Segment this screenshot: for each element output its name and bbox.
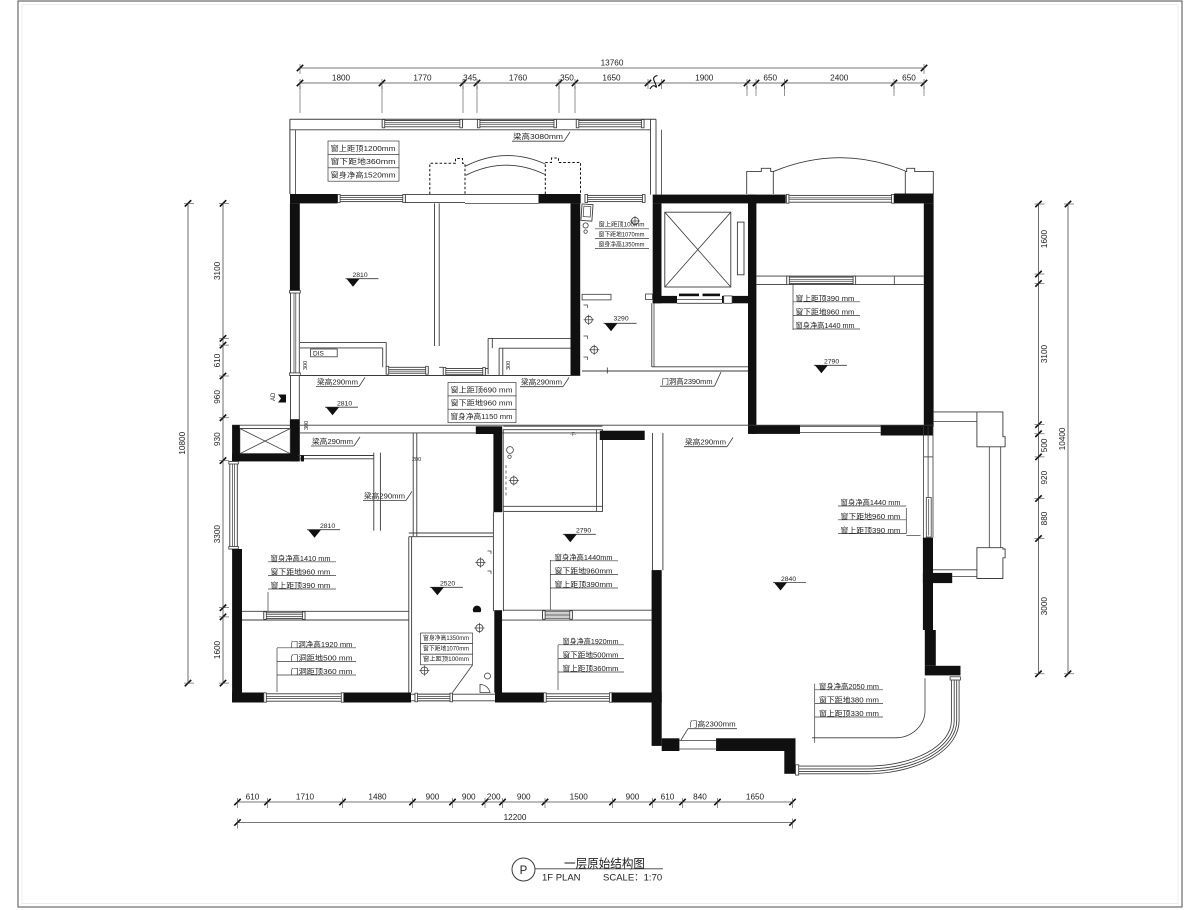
svg-text:1650: 1650 xyxy=(602,74,621,83)
svg-text:SCALE：1:70: SCALE：1:70 xyxy=(603,873,662,884)
svg-text:窗身净高1350mm: 窗身净高1350mm xyxy=(599,240,645,248)
svg-text:DIS: DIS xyxy=(313,351,325,358)
svg-text:1710: 1710 xyxy=(296,793,315,802)
svg-text:960: 960 xyxy=(213,390,222,404)
svg-text:2400: 2400 xyxy=(830,74,849,83)
svg-text:梁高290mm: 梁高290mm xyxy=(521,378,562,387)
svg-text:1600: 1600 xyxy=(1040,229,1049,248)
svg-text:610: 610 xyxy=(246,793,260,802)
svg-text:880: 880 xyxy=(1040,511,1049,525)
svg-text:650: 650 xyxy=(902,74,916,83)
svg-text:1800: 1800 xyxy=(332,74,351,83)
svg-text:窗身净高1350mm: 窗身净高1350mm xyxy=(423,634,469,642)
svg-text:门高2300mm: 门高2300mm xyxy=(690,720,736,729)
svg-text:900: 900 xyxy=(517,793,531,802)
svg-text:2790: 2790 xyxy=(576,528,591,535)
svg-text:1480: 1480 xyxy=(368,793,387,802)
svg-text:300: 300 xyxy=(304,421,310,430)
svg-text:窗上距顶690 mm: 窗上距顶690 mm xyxy=(451,385,513,394)
svg-text:350: 350 xyxy=(560,74,574,83)
svg-text:930: 930 xyxy=(213,432,222,446)
svg-text:900: 900 xyxy=(426,793,440,802)
svg-text:窗上距顶1200mm: 窗上距顶1200mm xyxy=(331,144,396,153)
svg-text:200: 200 xyxy=(487,793,501,802)
svg-text:窗上距顶100mm: 窗上距顶100mm xyxy=(423,655,469,663)
svg-text:2810: 2810 xyxy=(353,272,368,279)
svg-text:900: 900 xyxy=(462,793,476,802)
svg-text:1900: 1900 xyxy=(695,74,714,83)
svg-text:2790: 2790 xyxy=(824,359,839,366)
svg-text:3100: 3100 xyxy=(1040,344,1049,363)
svg-text:3290: 3290 xyxy=(614,316,629,323)
svg-text:500: 500 xyxy=(1040,438,1049,452)
svg-text:梁高3080mm: 梁高3080mm xyxy=(513,132,563,141)
svg-text:1770: 1770 xyxy=(413,74,432,83)
svg-text:窗下距地1070mm: 窗下距地1070mm xyxy=(599,231,645,239)
svg-text:窗身净高1150 mm: 窗身净高1150 mm xyxy=(451,412,513,421)
svg-text:300: 300 xyxy=(303,361,309,370)
svg-text:AD: AD xyxy=(271,392,277,401)
svg-text:610: 610 xyxy=(213,353,222,367)
svg-text:门洞高2390mm: 门洞高2390mm xyxy=(662,377,713,386)
svg-text:1F PLAN: 1F PLAN xyxy=(542,873,581,884)
svg-text:-F-: -F- xyxy=(570,432,577,438)
svg-text:2810: 2810 xyxy=(337,401,352,408)
svg-text:3100: 3100 xyxy=(213,261,222,280)
svg-text:610: 610 xyxy=(661,793,675,802)
svg-text:1500: 1500 xyxy=(570,793,589,802)
svg-text:3300: 3300 xyxy=(213,525,222,544)
svg-text:920: 920 xyxy=(1040,470,1049,484)
svg-text:梁高290mm: 梁高290mm xyxy=(317,377,358,386)
svg-text:2520: 2520 xyxy=(440,581,455,588)
svg-text:12200: 12200 xyxy=(504,813,527,822)
svg-text:10400: 10400 xyxy=(1058,427,1067,450)
svg-text:3000: 3000 xyxy=(1040,597,1049,616)
svg-text:1760: 1760 xyxy=(509,74,528,83)
svg-text:10800: 10800 xyxy=(178,431,187,454)
svg-text:窗上距顶100mm: 窗上距顶100mm xyxy=(599,221,645,229)
svg-text:900: 900 xyxy=(626,793,640,802)
svg-text:840: 840 xyxy=(693,793,707,802)
svg-text:梁高290mm: 梁高290mm xyxy=(312,437,353,446)
svg-text:1650: 1650 xyxy=(746,793,765,802)
svg-text:窗下距地360mm: 窗下距地360mm xyxy=(331,157,396,166)
svg-text:窗下距地1070mm: 窗下距地1070mm xyxy=(423,645,469,653)
svg-text:窗下距地960 mm: 窗下距地960 mm xyxy=(451,399,513,408)
svg-text:2840: 2840 xyxy=(781,576,796,583)
svg-text:1600: 1600 xyxy=(213,640,222,659)
svg-text:650: 650 xyxy=(763,74,777,83)
svg-text:梁高290mm: 梁高290mm xyxy=(364,491,405,500)
svg-text:345: 345 xyxy=(463,74,477,83)
svg-text:P: P xyxy=(520,865,528,877)
svg-text:梁高290mm: 梁高290mm xyxy=(685,438,726,447)
svg-text:2810: 2810 xyxy=(320,523,335,530)
svg-text:窗身净高1520mm: 窗身净高1520mm xyxy=(331,171,396,180)
svg-text:13760: 13760 xyxy=(601,59,624,68)
svg-text:300: 300 xyxy=(506,361,512,370)
